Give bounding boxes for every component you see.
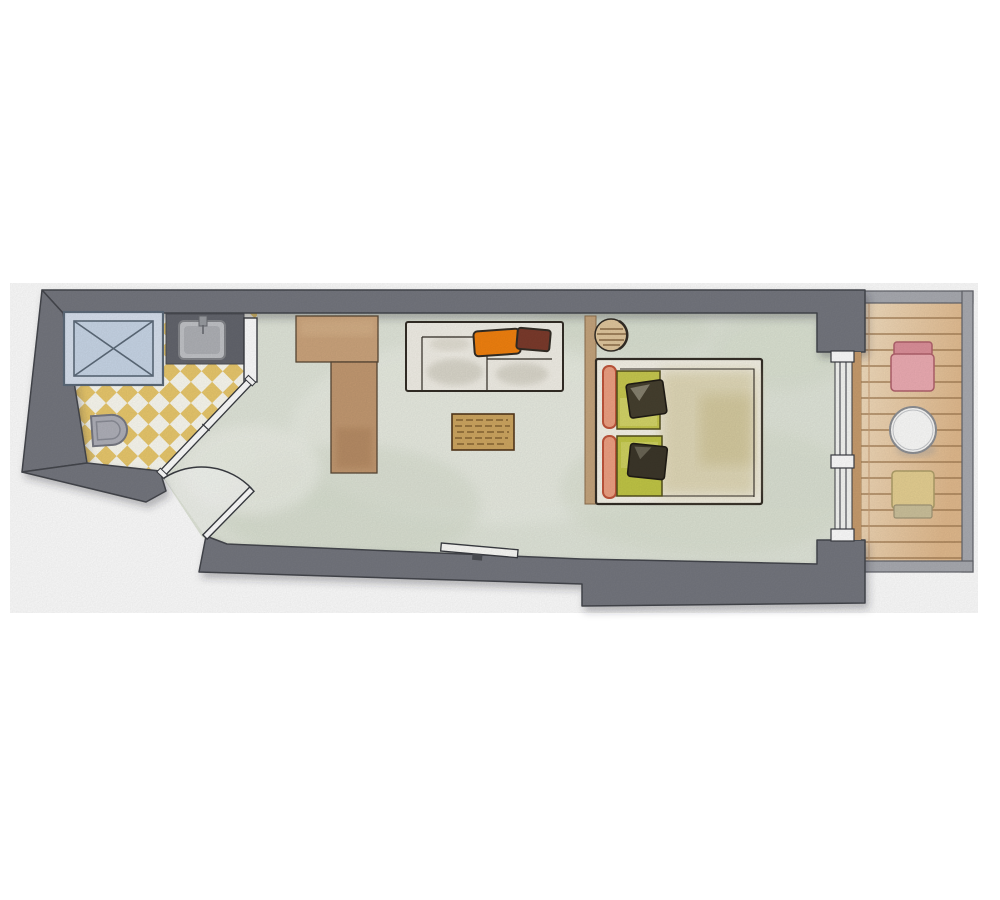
sofa-shading (496, 363, 548, 385)
bed-bolster (603, 436, 616, 498)
tv-mount (472, 554, 482, 561)
coffee-table (452, 414, 514, 450)
headboard-partition (585, 316, 596, 504)
wardrobe-wash-dark (336, 428, 372, 468)
toilet (91, 414, 128, 446)
window-mullion (831, 529, 854, 541)
window-glazing-band (835, 352, 852, 540)
sofa-pillow-maroon (516, 328, 551, 352)
bedside-stool (595, 319, 627, 351)
window-wood-frame (852, 352, 861, 540)
sofa-shading (427, 359, 483, 385)
floor-plan (0, 0, 1000, 900)
window-mullion (831, 351, 854, 362)
railing-right (962, 291, 973, 572)
railing-bottom (858, 561, 973, 572)
sofa-pillow-orange (473, 328, 521, 356)
balcony-table (890, 407, 936, 453)
balcony (858, 291, 973, 572)
railing-top (858, 291, 973, 303)
sofa-shading (430, 337, 470, 351)
bed-bolster (603, 366, 616, 428)
balcony-chair-beige (892, 471, 934, 518)
sofa (406, 322, 563, 391)
wardrobe-wash-light (300, 320, 374, 336)
window-mullion (831, 455, 854, 468)
balcony-window (831, 351, 861, 541)
beige-chair-seat (892, 471, 934, 509)
floor-plan-page (0, 0, 1000, 900)
wall-entry-left (22, 463, 166, 502)
double-bed (596, 359, 762, 504)
washbasin-bowl (184, 326, 220, 354)
bathroom-wall-jamb (244, 318, 257, 382)
pink-chair-seat (891, 354, 934, 391)
bed-duvet-wash-deep (700, 395, 752, 465)
beige-chair-front-band (894, 505, 932, 518)
balcony-chair-pink (891, 342, 934, 391)
